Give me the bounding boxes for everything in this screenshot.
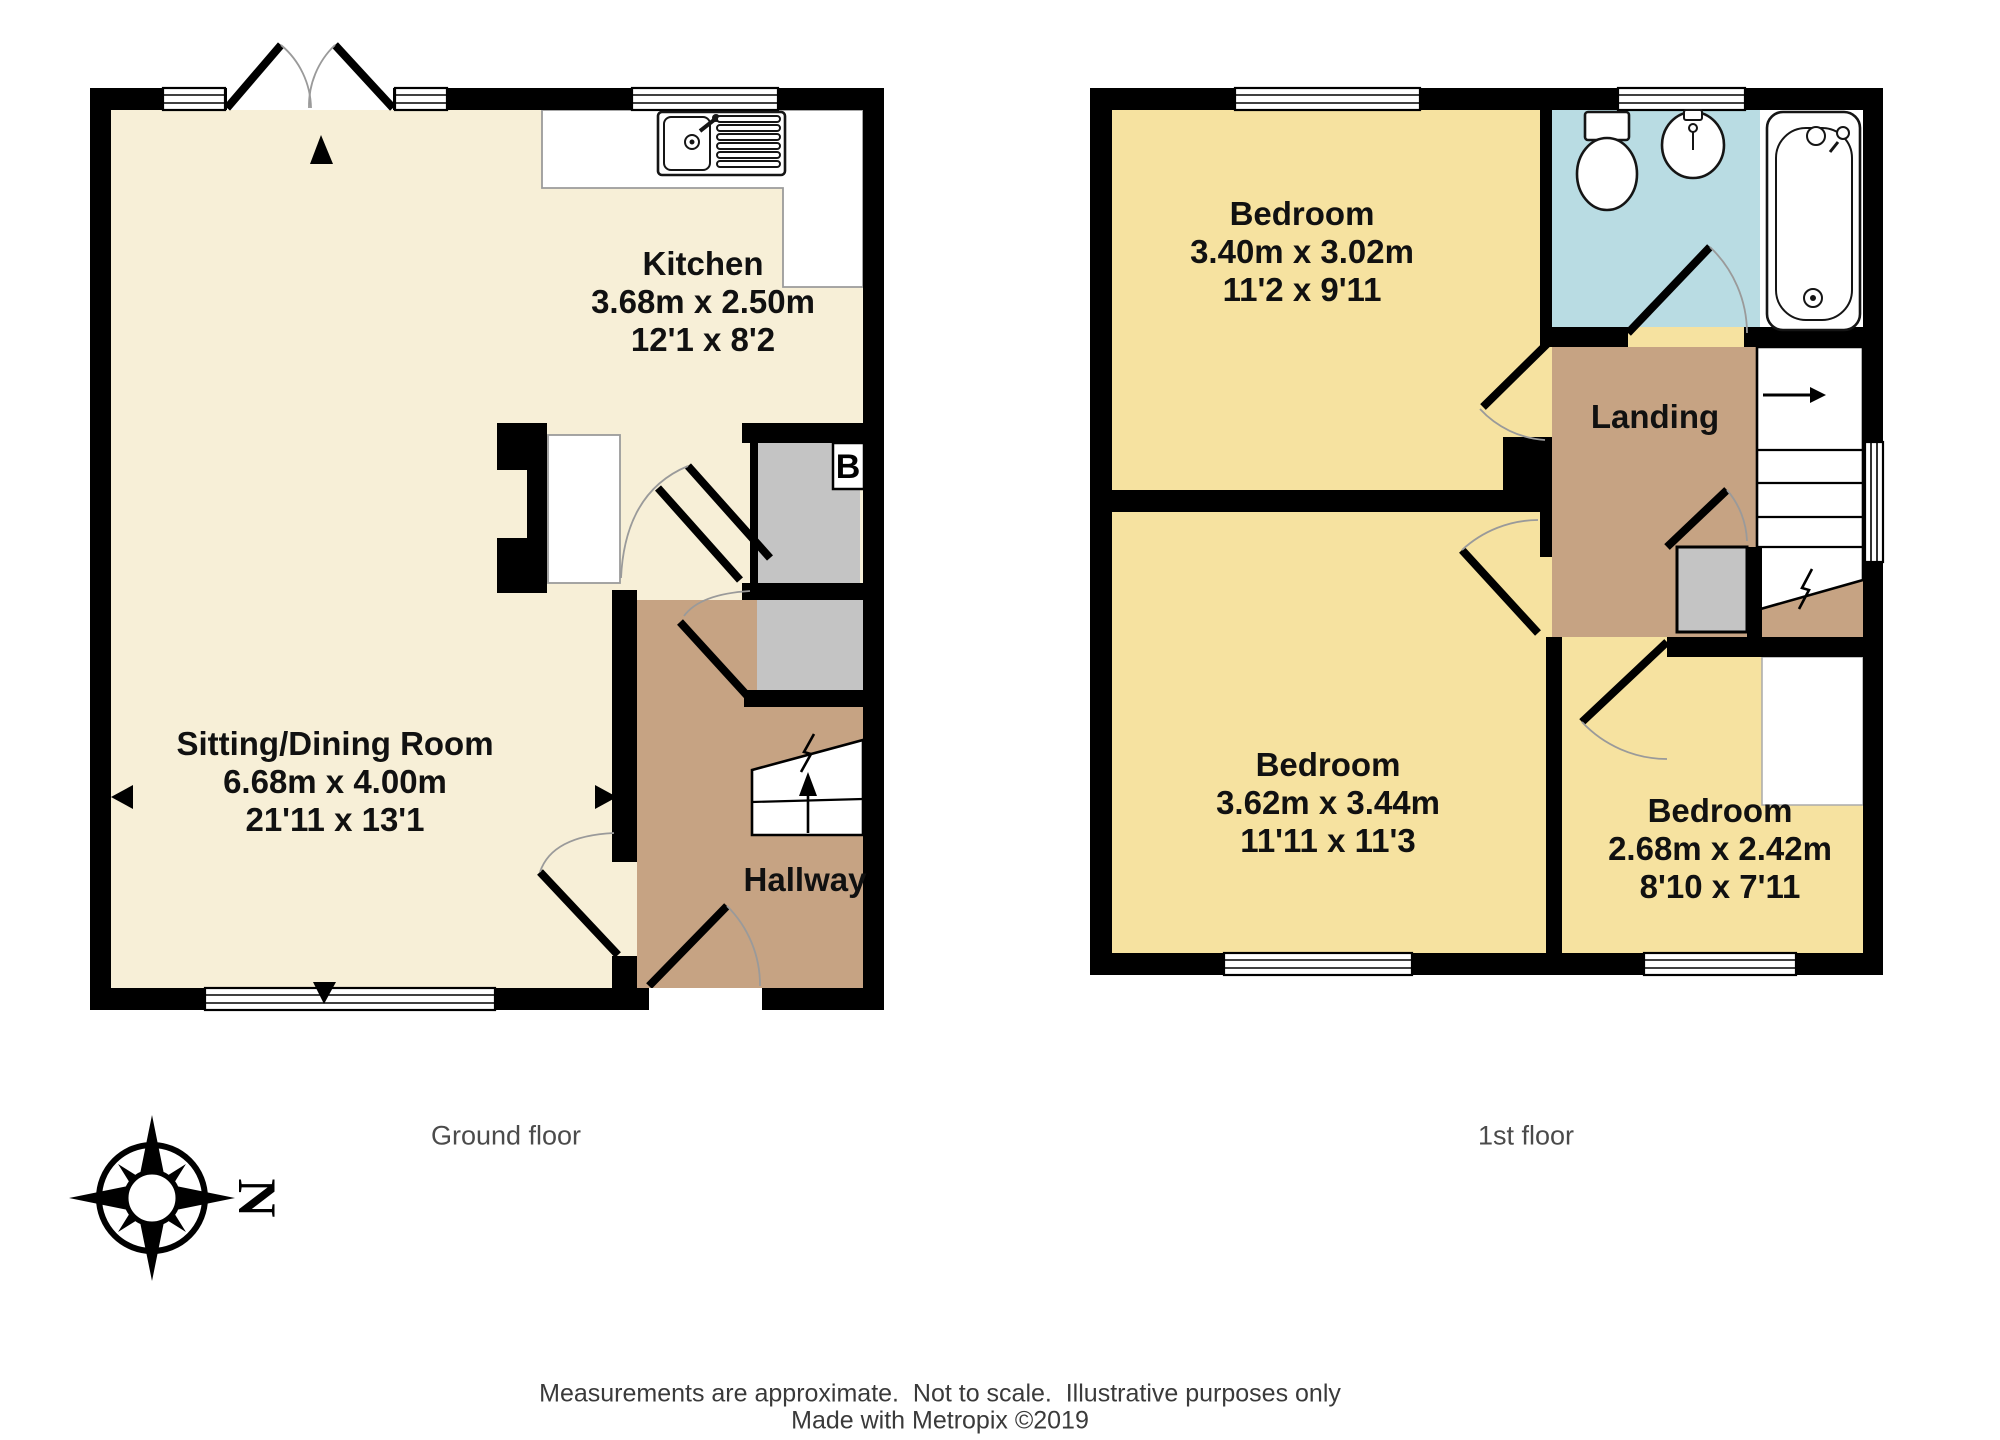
room-label-bedroom3: Bedroom 2.68m x 2.42m 8'10 x 7'11 (1608, 792, 1832, 906)
floorplan-drawing: B (0, 0, 2000, 1440)
room-name: Hallway (744, 861, 867, 899)
floorplan-page: B (0, 0, 2000, 1440)
sink-icon (658, 112, 785, 175)
bathtub-icon (1767, 112, 1860, 330)
landing-cupboard (1677, 547, 1747, 632)
first-floor-stairs (1757, 347, 1863, 610)
room-size-metric: 3.68m x 2.50m (591, 283, 815, 321)
room-name: Landing (1591, 398, 1719, 436)
sitting-room-window (205, 988, 495, 1010)
room-size-imperial: 21'11 x 13'1 (176, 801, 493, 839)
front-door-opening (649, 988, 762, 1010)
window (163, 88, 225, 110)
room-name: Bedroom (1190, 195, 1414, 233)
compass-rose-icon (69, 1115, 235, 1281)
chimney-cupboard (548, 435, 620, 583)
room-size-metric: 3.40m x 3.02m (1190, 233, 1414, 271)
bathroom-window (1618, 88, 1745, 110)
disclaimer-text: Measurements are approximate. Not to sca… (539, 1380, 1341, 1409)
room-size-metric: 2.68m x 2.42m (1608, 830, 1832, 868)
stairs-window (1865, 442, 1883, 562)
room-label-bedroom2: Bedroom 3.62m x 3.44m 11'11 x 11'3 (1216, 746, 1440, 860)
room-size-metric: 3.62m x 3.44m (1216, 784, 1440, 822)
room-label-hallway: Hallway (744, 861, 867, 899)
room-label-bedroom1: Bedroom 3.40m x 3.02m 11'2 x 9'11 (1190, 195, 1414, 309)
room-size-imperial: 11'2 x 9'11 (1190, 271, 1414, 309)
room-name: Bedroom (1216, 746, 1440, 784)
kitchen-window (632, 88, 778, 110)
boiler-letter: B (836, 448, 861, 486)
bedroom3-window (1644, 953, 1796, 975)
credit-text: Made with Metropix ©2019 (791, 1407, 1089, 1436)
window (395, 88, 447, 110)
room-name: Kitchen (591, 245, 815, 283)
boiler-badge: B (833, 443, 864, 489)
room-label-landing: Landing (1591, 398, 1719, 436)
stair-bulkhead (1762, 657, 1863, 805)
bathroom-floor (1552, 110, 1760, 327)
bedroom2-window (1224, 953, 1412, 975)
bedroom1-window (1235, 88, 1420, 110)
hall-cupboard (757, 598, 863, 690)
ground-floor-caption: Ground floor (431, 1121, 581, 1152)
room-size-imperial: 11'11 x 11'3 (1216, 822, 1440, 860)
first-floor-caption: 1st floor (1478, 1121, 1574, 1152)
room-name: Bedroom (1608, 792, 1832, 830)
room-label-sitting-dining: Sitting/Dining Room 6.68m x 4.00m 21'11 … (176, 725, 493, 839)
room-size-imperial: 8'10 x 7'11 (1608, 868, 1832, 906)
compass-north-label: N (226, 1179, 288, 1218)
room-label-kitchen: Kitchen 3.68m x 2.50m 12'1 x 8'2 (591, 245, 815, 359)
room-size-metric: 6.68m x 4.00m (176, 763, 493, 801)
toilet-icon (1577, 112, 1637, 210)
room-size-imperial: 12'1 x 8'2 (591, 321, 815, 359)
basin-icon (1662, 110, 1724, 178)
room-name: Sitting/Dining Room (176, 725, 493, 763)
